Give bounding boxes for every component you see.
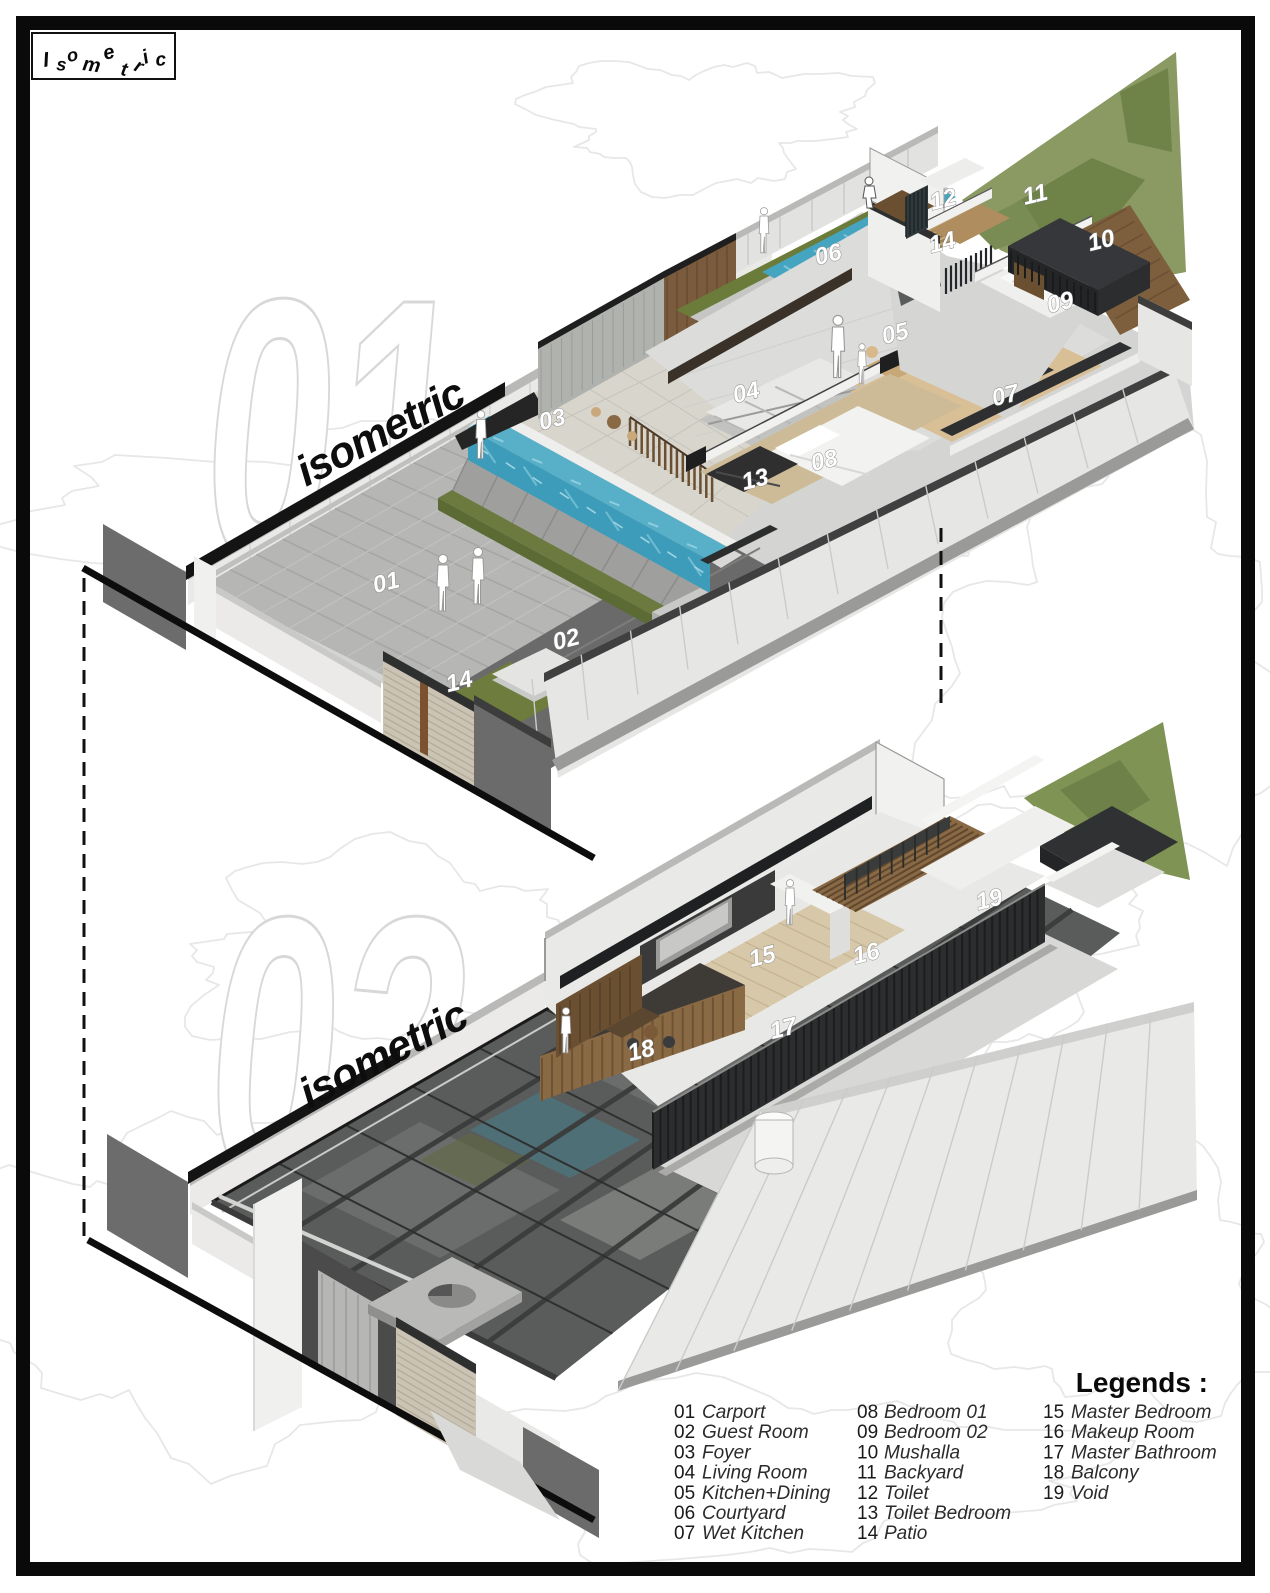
svg-text:06: 06 [674, 1503, 695, 1524]
svg-text:02: 02 [674, 1422, 695, 1443]
svg-text:Bedroom 01: Bedroom 01 [884, 1402, 988, 1423]
svg-text:17: 17 [1043, 1442, 1064, 1463]
svg-text:08: 08 [857, 1402, 878, 1423]
svg-text:01: 01 [674, 1402, 695, 1423]
svg-text:04: 04 [674, 1463, 696, 1484]
svg-text:Master Bedroom: Master Bedroom [1071, 1402, 1211, 1423]
svg-text:Guest Room: Guest Room [702, 1422, 809, 1443]
svg-text:Mushalla: Mushalla [884, 1442, 960, 1463]
svg-text:s: s [56, 54, 68, 75]
svg-text:10: 10 [857, 1442, 878, 1463]
svg-text:19: 19 [1043, 1483, 1064, 1504]
svg-text:Patio: Patio [884, 1523, 927, 1544]
svg-text:Master Bathroom: Master Bathroom [1071, 1442, 1217, 1463]
svg-text:Toilet Bedroom: Toilet Bedroom [884, 1503, 1011, 1524]
svg-text:Toilet: Toilet [884, 1483, 929, 1504]
svg-text:Makeup Room: Makeup Room [1071, 1422, 1195, 1443]
svg-text:Bedroom 02: Bedroom 02 [884, 1422, 988, 1443]
svg-text:Living Room: Living Room [702, 1463, 808, 1484]
svg-text:Wet Kitchen: Wet Kitchen [702, 1523, 804, 1544]
svg-text:16: 16 [1043, 1422, 1064, 1443]
svg-text:Carport: Carport [702, 1402, 766, 1423]
svg-text:12: 12 [857, 1483, 878, 1504]
svg-text:03: 03 [674, 1442, 695, 1463]
svg-text:18: 18 [1043, 1463, 1064, 1484]
svg-text:Kitchen+Dining: Kitchen+Dining [702, 1483, 831, 1504]
svg-text:05: 05 [674, 1483, 695, 1504]
svg-text:Backyard: Backyard [884, 1463, 965, 1484]
svg-text:13: 13 [857, 1503, 878, 1524]
svg-text:Courtyard: Courtyard [702, 1503, 787, 1524]
svg-text:07: 07 [674, 1523, 695, 1544]
svg-text:Foyer: Foyer [702, 1442, 751, 1463]
svg-text:14: 14 [857, 1523, 879, 1544]
svg-text:15: 15 [1043, 1402, 1064, 1423]
svg-text:Balcony: Balcony [1071, 1463, 1140, 1484]
svg-text:Legends :: Legends : [1076, 1367, 1208, 1398]
svg-text:11: 11 [857, 1463, 877, 1484]
svg-text:m: m [81, 53, 102, 77]
svg-text:Void: Void [1071, 1483, 1110, 1504]
svg-text:09: 09 [857, 1422, 878, 1443]
